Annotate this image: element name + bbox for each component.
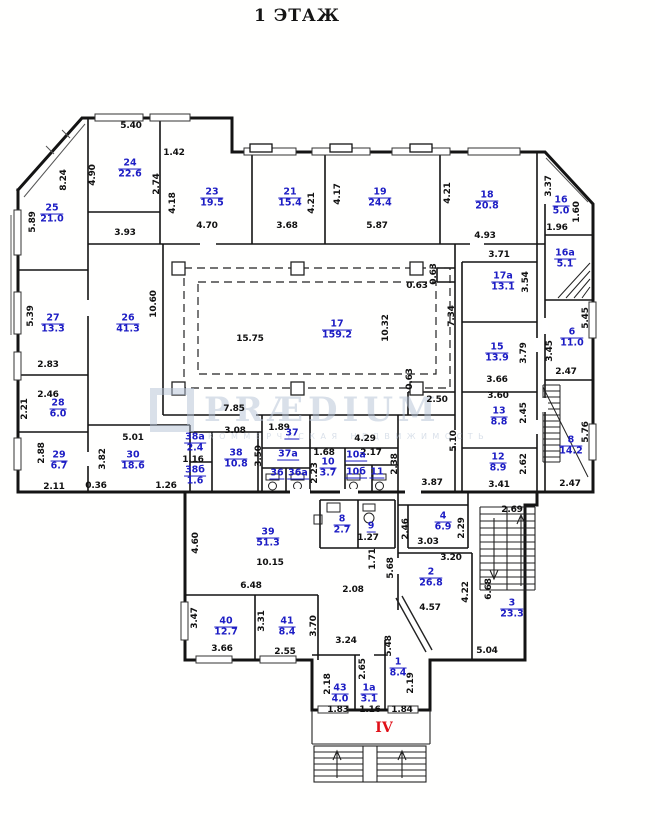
dim-label: 4.18 xyxy=(168,192,178,213)
dim-label: 4.57 xyxy=(419,603,440,613)
page-title: 1 ЭТАЖ xyxy=(254,6,340,26)
dim-label: 3.82 xyxy=(98,448,108,469)
dim-label: 5.68 xyxy=(386,557,396,578)
dim-label: 3.24 xyxy=(335,636,356,646)
room-area: 2.7 xyxy=(334,526,351,536)
room-label-41-38: 418.4 xyxy=(279,617,296,638)
dim-label: 2.50 xyxy=(426,395,447,405)
dim-label: 1.96 xyxy=(546,223,567,233)
dim-label: 4.21 xyxy=(307,192,317,213)
dim-label: 7.34 xyxy=(447,305,457,326)
dim-label: 5.45 xyxy=(581,307,591,328)
room-area: 41.3 xyxy=(116,325,139,335)
dim-label: 3.20 xyxy=(440,553,461,563)
dim-label: 5.87 xyxy=(366,221,387,231)
room-label-17-11: 17159.2 xyxy=(322,320,352,341)
dim-label: 1.26 xyxy=(155,481,176,491)
dim-label: 4.22 xyxy=(461,581,471,602)
room-area: 24.4 xyxy=(368,199,391,209)
room-number: 10а xyxy=(345,451,367,462)
room-label-37а-22: 37а xyxy=(277,450,299,461)
dim-label: 2.11 xyxy=(43,482,64,492)
dim-label: 2.47 xyxy=(559,479,580,489)
room-label-28-14: 286.0 xyxy=(50,399,67,420)
room-area: 15.4 xyxy=(278,199,301,209)
dim-label: 1.83 xyxy=(327,705,348,715)
dim-label: 3.93 xyxy=(114,228,135,238)
dim-label: 3.50 xyxy=(254,445,264,466)
room-label-24-1: 2422.6 xyxy=(118,159,141,180)
dim-label: 2.08 xyxy=(342,585,363,595)
room-area: 11.0 xyxy=(560,339,583,349)
dim-label: 3.87 xyxy=(421,478,442,488)
room-area: 2.4 xyxy=(184,444,206,454)
room-label-1а-40: 1а3.1 xyxy=(361,684,378,705)
dim-label: 6.48 xyxy=(240,581,261,591)
dim-label: 2.29 xyxy=(457,517,467,538)
dim-label: 2.88 xyxy=(37,442,47,463)
room-area: 5.1 xyxy=(554,260,576,270)
dim-label: 2.45 xyxy=(519,402,529,423)
room-label-38-20: 3810.8 xyxy=(224,449,247,470)
room-number: 11 xyxy=(369,468,384,479)
room-area: 13.1 xyxy=(491,283,514,293)
dim-label: 4.93 xyxy=(474,231,495,241)
room-area: 12.7 xyxy=(214,628,237,638)
dim-label: 5.04 xyxy=(476,646,497,656)
room-label-2-35: 226.8 xyxy=(419,568,442,589)
room-area: 23.3 xyxy=(500,610,523,620)
dim-label: 5.48 xyxy=(384,635,394,656)
room-label-38а-18: 38а2.4 xyxy=(184,433,206,454)
dim-label: 0.63 xyxy=(406,281,427,291)
room-number: 36 xyxy=(269,469,284,480)
dim-label: 3.03 xyxy=(417,537,438,547)
dim-label: 2.69 xyxy=(501,505,522,515)
room-label-12-29: 128.9 xyxy=(490,453,507,474)
dim-label: 3.66 xyxy=(486,375,507,385)
dim-label: 10.15 xyxy=(256,558,283,568)
dim-label: 4.21 xyxy=(443,182,453,203)
room-area: 8.8 xyxy=(491,418,508,428)
room-area: 3.1 xyxy=(361,695,378,705)
dim-label: 1.42 xyxy=(163,148,184,158)
room-area: 5.0 xyxy=(553,207,570,217)
dim-label: 3.41 xyxy=(488,480,509,490)
dim-label: 3.70 xyxy=(309,615,319,636)
room-label-43-39: 434.0 xyxy=(332,684,349,705)
room-area: 8.4 xyxy=(390,669,407,679)
room-label-11-28: 11 xyxy=(369,468,384,479)
dim-label: 3.37 xyxy=(544,175,554,196)
dim-label: 1.71 xyxy=(368,548,378,569)
room-area: 6.0 xyxy=(50,410,67,420)
dim-label: 2.83 xyxy=(37,360,58,370)
dim-label: 15.75 xyxy=(236,334,263,344)
room-area: 3.7 xyxy=(320,469,337,479)
dim-label: 2.47 xyxy=(555,367,576,377)
room-label-10б-27: 10б xyxy=(345,468,367,479)
dim-label: 8.24 xyxy=(59,169,69,190)
dim-label: 3.54 xyxy=(521,271,531,292)
dim-label: 3.68 xyxy=(276,221,297,231)
dim-label: 3.71 xyxy=(488,250,509,260)
room-number: 37 xyxy=(284,429,299,440)
dim-label: 3.66 xyxy=(211,644,232,654)
dim-label: 2.62 xyxy=(519,453,529,474)
room-label-40-37: 4012.7 xyxy=(214,617,237,638)
room-area: 13.9 xyxy=(485,354,508,364)
room-label-37-21: 37 xyxy=(284,429,299,440)
dim-label: 5.89 xyxy=(28,211,38,232)
toilet-fixtures xyxy=(266,474,386,524)
room-label-3-36: 323.3 xyxy=(500,599,523,620)
dim-label: 5.10 xyxy=(449,430,459,451)
room-area: 18.6 xyxy=(121,462,144,472)
room-number: 9 xyxy=(367,522,376,533)
dim-label: 10.60 xyxy=(149,290,159,317)
room-label-27-9: 2713.3 xyxy=(41,314,64,335)
room-label-16а-7: 16а5.1 xyxy=(554,249,576,270)
dim-label: 0.63 xyxy=(405,368,415,389)
dim-label: 3.79 xyxy=(519,342,529,363)
room-label-23-2: 2319.5 xyxy=(200,188,223,209)
dim-label: 1.16 xyxy=(359,705,380,715)
room-area: 159.2 xyxy=(322,331,352,341)
room-label-19-4: 1924.4 xyxy=(368,188,391,209)
dim-label: 10.32 xyxy=(381,314,391,341)
dim-label: 0.63 xyxy=(429,263,439,284)
room-label-21-3: 2115.4 xyxy=(278,188,301,209)
room-label-17а-8: 17а13.1 xyxy=(491,272,514,293)
entrance-stairs xyxy=(312,710,430,782)
dim-label: 4.29 xyxy=(354,434,375,444)
room-label-26-10: 2641.3 xyxy=(116,314,139,335)
windows xyxy=(14,114,596,713)
room-number: 10б xyxy=(345,468,367,479)
room-number: 37а xyxy=(277,450,299,461)
dim-label: 2.74 xyxy=(152,173,162,194)
dim-label: 3.47 xyxy=(190,607,200,628)
dim-label: 5.39 xyxy=(26,305,36,326)
room-area: 8.4 xyxy=(279,628,296,638)
room-area: 26.8 xyxy=(419,579,442,589)
room-area: 22.6 xyxy=(118,170,141,180)
dim-label: 1.27 xyxy=(357,533,378,543)
room-label-4-34: 46.9 xyxy=(435,512,452,533)
dim-label: 7.85 xyxy=(223,404,244,414)
dim-label: 4.60 xyxy=(191,532,201,553)
entrance-number-label: IV xyxy=(375,720,392,736)
room-label-18-5: 1820.8 xyxy=(475,191,498,212)
dim-label: 6.68 xyxy=(484,578,494,599)
room-label-10а-26: 10а xyxy=(345,451,367,462)
room-area: 19.5 xyxy=(200,199,223,209)
dim-label: 2.23 xyxy=(310,462,320,483)
dim-label: 4.70 xyxy=(196,221,217,231)
room-label-8-32: 82.7 xyxy=(334,515,351,536)
room-area: 10.8 xyxy=(224,460,247,470)
dim-label: 1.60 xyxy=(572,201,582,222)
room-label-39-31: 3951.3 xyxy=(256,528,279,549)
room-label-38б-19: 38б1.6 xyxy=(184,466,206,487)
room-area: 20.8 xyxy=(475,202,498,212)
room-label-13-15: 138.8 xyxy=(491,407,508,428)
room-label-8-30: 814.2 xyxy=(559,436,582,457)
dim-label: 3.45 xyxy=(545,340,555,361)
dim-label: 0.36 xyxy=(85,481,106,491)
dim-label: 2.46 xyxy=(401,518,411,539)
dim-label: 2.55 xyxy=(274,647,295,657)
room-label-1-41: 18.4 xyxy=(390,658,407,679)
room-label-16-6: 165.0 xyxy=(553,196,570,217)
room-area: 6.9 xyxy=(435,523,452,533)
room-label-10-25: 103.7 xyxy=(320,458,337,479)
room-area: 14.2 xyxy=(559,447,582,457)
room-area: 21.0 xyxy=(40,215,63,225)
room-label-25-0: 2521.0 xyxy=(40,204,63,225)
wall-detail-lines xyxy=(11,124,588,335)
dim-label: 2.21 xyxy=(20,398,30,419)
dim-label: 3.31 xyxy=(257,610,267,631)
dim-label: 2.38 xyxy=(390,453,400,474)
room-label-36а-24: 36а xyxy=(287,469,309,480)
dim-label: 5.01 xyxy=(122,433,143,443)
dim-label: 3.60 xyxy=(487,391,508,401)
room-label-6-13: 611.0 xyxy=(560,328,583,349)
room-area: 6.7 xyxy=(51,462,68,472)
room-area: 51.3 xyxy=(256,539,279,549)
room-area: 13.3 xyxy=(41,325,64,335)
floor-plan: 1 ЭТАЖ PRÆDIUM КОММЕРЧЕСКАЯ НЕДВИЖИМОСТЬ… xyxy=(0,0,655,834)
dim-label: 1.84 xyxy=(391,705,412,715)
room-area: 4.0 xyxy=(332,695,349,705)
dim-label: 5.40 xyxy=(120,121,141,131)
room-label-9-33: 9 xyxy=(367,522,376,533)
room-label-15-12: 1513.9 xyxy=(485,343,508,364)
room-label-30-17: 3018.6 xyxy=(121,451,144,472)
room-area: 8.9 xyxy=(490,464,507,474)
room-number: 36а xyxy=(287,469,309,480)
room-label-36-23: 36 xyxy=(269,469,284,480)
dim-label: 4.90 xyxy=(88,164,98,185)
dim-label: 3.08 xyxy=(224,426,245,436)
room-area: 1.6 xyxy=(184,477,206,487)
dim-label: 1.16 xyxy=(182,455,203,465)
dim-label: 2.19 xyxy=(406,672,416,693)
dim-label: 4.17 xyxy=(333,183,343,204)
room-label-29-16: 296.7 xyxy=(51,451,68,472)
dim-label: 2.65 xyxy=(358,658,368,679)
